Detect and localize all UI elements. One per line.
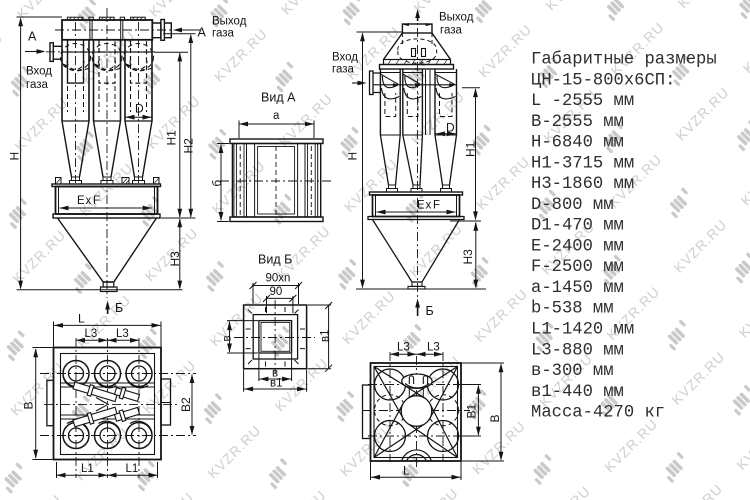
svg-text:Б: Б <box>115 301 123 315</box>
svg-text:газа: газа <box>212 28 234 40</box>
svg-text:F: F <box>433 200 440 212</box>
svg-text:Выход: Выход <box>439 12 474 24</box>
svg-text:F-2500 мм: F-2500 мм <box>531 258 624 277</box>
svg-text:H3: H3 <box>168 251 182 267</box>
svg-text:а-1450 мм: а-1450 мм <box>531 279 624 298</box>
svg-text:Е-2400 мм: Е-2400 мм <box>531 237 624 256</box>
svg-text:B: B <box>22 401 36 409</box>
svg-text:F: F <box>93 195 100 207</box>
svg-text:L3: L3 <box>116 328 129 340</box>
svg-text:a: a <box>273 110 280 122</box>
svg-text:б: б <box>212 180 224 187</box>
svg-text:газа: газа <box>440 25 462 37</box>
svg-text:90: 90 <box>270 286 283 298</box>
svg-text:D1-470 мм: D1-470 мм <box>531 217 624 236</box>
svg-text:А: А <box>28 30 37 44</box>
svg-text:Габаритные размеры: Габаритные размеры <box>531 51 717 70</box>
svg-text:Вход: Вход <box>332 52 358 64</box>
svg-text:в: в <box>222 335 234 341</box>
svg-text:L3: L3 <box>85 328 98 340</box>
svg-text:газа: газа <box>332 64 354 76</box>
svg-text:Вид Б: Вид Б <box>258 253 292 267</box>
svg-text:D: D <box>135 102 144 116</box>
svg-text:B2: B2 <box>179 397 193 412</box>
svg-text:Б: Б <box>426 304 434 318</box>
svg-text:Н1-3715 мм: Н1-3715 мм <box>531 154 634 173</box>
svg-text:Масса-4270 кг: Масса-4270 кг <box>531 404 665 423</box>
svg-text:газа: газа <box>26 79 48 91</box>
svg-text:L1: L1 <box>126 463 139 475</box>
svg-text:H1: H1 <box>165 130 179 146</box>
svg-text:E: E <box>77 195 85 207</box>
svg-text:L1: L1 <box>81 463 94 475</box>
svg-text:H: H <box>346 152 360 161</box>
svg-text:x: x <box>426 200 432 212</box>
svg-text:L: L <box>78 312 85 326</box>
svg-text:E: E <box>417 200 425 212</box>
svg-text:L1-1420 мм: L1-1420 мм <box>531 321 634 340</box>
svg-text:ЦН-15-800х6СП:: ЦН-15-800х6СП: <box>531 71 675 90</box>
svg-text:B: B <box>488 414 502 422</box>
svg-text:B1: B1 <box>465 403 479 418</box>
svg-text:Вид А: Вид А <box>261 91 296 105</box>
svg-text:Н-6840 мм: Н-6840 мм <box>531 134 624 153</box>
svg-text:D: D <box>446 121 455 135</box>
svg-text:H2: H2 <box>182 138 196 154</box>
svg-text:L3-880 мм: L3-880 мм <box>531 341 624 360</box>
svg-text:Выход: Выход <box>212 16 247 28</box>
svg-text:в1: в1 <box>320 329 332 342</box>
svg-text:Н3-1860 мм: Н3-1860 мм <box>531 175 634 194</box>
svg-text:в-300 мм: в-300 мм <box>531 362 614 381</box>
svg-text:L3: L3 <box>397 342 410 354</box>
svg-text:L -2555 мм: L -2555 мм <box>531 92 634 111</box>
svg-text:В-2555 мм: В-2555 мм <box>531 113 624 132</box>
svg-text:Вход: Вход <box>26 66 52 78</box>
svg-text:90xn: 90xn <box>266 273 291 285</box>
svg-text:H: H <box>8 152 22 161</box>
svg-text:D-800 мм: D-800 мм <box>531 196 614 215</box>
svg-text:x: x <box>86 195 92 207</box>
svg-text:в1: в1 <box>270 378 283 390</box>
svg-text:в1-440 мм: в1-440 мм <box>531 383 624 402</box>
svg-text:H3: H3 <box>461 249 475 265</box>
svg-text:А: А <box>198 26 207 40</box>
svg-text:H1: H1 <box>464 141 478 157</box>
svg-text:L3: L3 <box>427 342 440 354</box>
svg-text:b-538 мм: b-538 мм <box>531 300 614 319</box>
svg-text:L: L <box>403 464 410 478</box>
